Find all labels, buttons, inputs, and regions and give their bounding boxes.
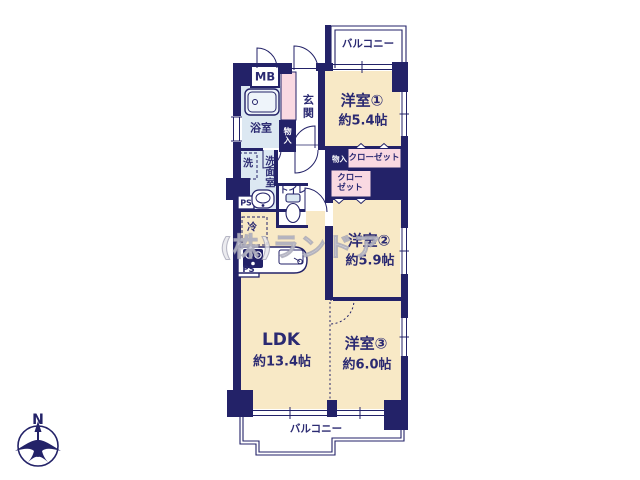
bathtub-icon bbox=[245, 89, 279, 115]
toilet-label: トイレ bbox=[279, 186, 306, 196]
ldk-name: LDK bbox=[262, 331, 300, 351]
storage1-label: 物入 bbox=[283, 127, 292, 145]
pipe-space-1-label: PS bbox=[240, 198, 252, 207]
floor-plan: N バルコニー 洋室① 約5.4帖 MB 玄関 浴室 物入 洗 洗面室 トイレ … bbox=[0, 0, 640, 480]
front-door-arc bbox=[294, 46, 318, 70]
closet1-label: クローゼット bbox=[348, 154, 399, 164]
room3-bottom-window bbox=[337, 407, 384, 419]
genkan-right-wall bbox=[318, 63, 325, 150]
hall-door-arc bbox=[295, 150, 318, 173]
balcony-bottom-label: バルコニー bbox=[290, 423, 342, 435]
bottom-mullion bbox=[327, 400, 337, 417]
bathroom-label: 浴室 bbox=[250, 123, 272, 136]
room1-size: 約5.4帖 bbox=[338, 115, 387, 130]
ldk-bottom-window bbox=[253, 407, 327, 419]
room3-right-window bbox=[400, 318, 410, 356]
closet-left-wall bbox=[325, 146, 331, 200]
room2-right-window bbox=[400, 228, 410, 274]
room1-name: 洋室① bbox=[341, 92, 384, 109]
room1-top-window bbox=[333, 61, 392, 73]
ldk-size: 約13.4帖 bbox=[253, 356, 311, 371]
genkan-label: 玄関 bbox=[301, 94, 314, 120]
meter-box-label: MB bbox=[255, 70, 275, 83]
toilet-icon bbox=[286, 194, 300, 223]
compass: N bbox=[15, 412, 61, 466]
closet2-label: クロー ゼット bbox=[337, 174, 363, 194]
balcony-top-bar bbox=[325, 25, 331, 71]
left-pillar-2 bbox=[227, 390, 253, 417]
ldk-door-arc bbox=[305, 188, 327, 212]
room3-door-arc-dotted bbox=[330, 300, 354, 324]
washbasin-icon bbox=[252, 190, 274, 208]
pipe-space-2-label: PS bbox=[242, 266, 254, 276]
storage2-label: 物入 bbox=[332, 155, 347, 164]
washer-label: 洗 bbox=[243, 158, 253, 170]
balcony-top-label: バルコニー bbox=[342, 38, 394, 50]
left-wall-window bbox=[231, 116, 242, 142]
room3-size: 約6.0帖 bbox=[342, 359, 391, 374]
washroom-label: 洗面室 bbox=[262, 156, 274, 189]
room3-name: 洋室③ bbox=[345, 335, 388, 352]
bottom-right-pillar bbox=[384, 400, 408, 430]
room1-right-window bbox=[400, 92, 410, 136]
watermark: (株)ランドア bbox=[220, 227, 381, 264]
closet-right-block bbox=[371, 168, 408, 200]
bath-wall bbox=[241, 148, 263, 151]
